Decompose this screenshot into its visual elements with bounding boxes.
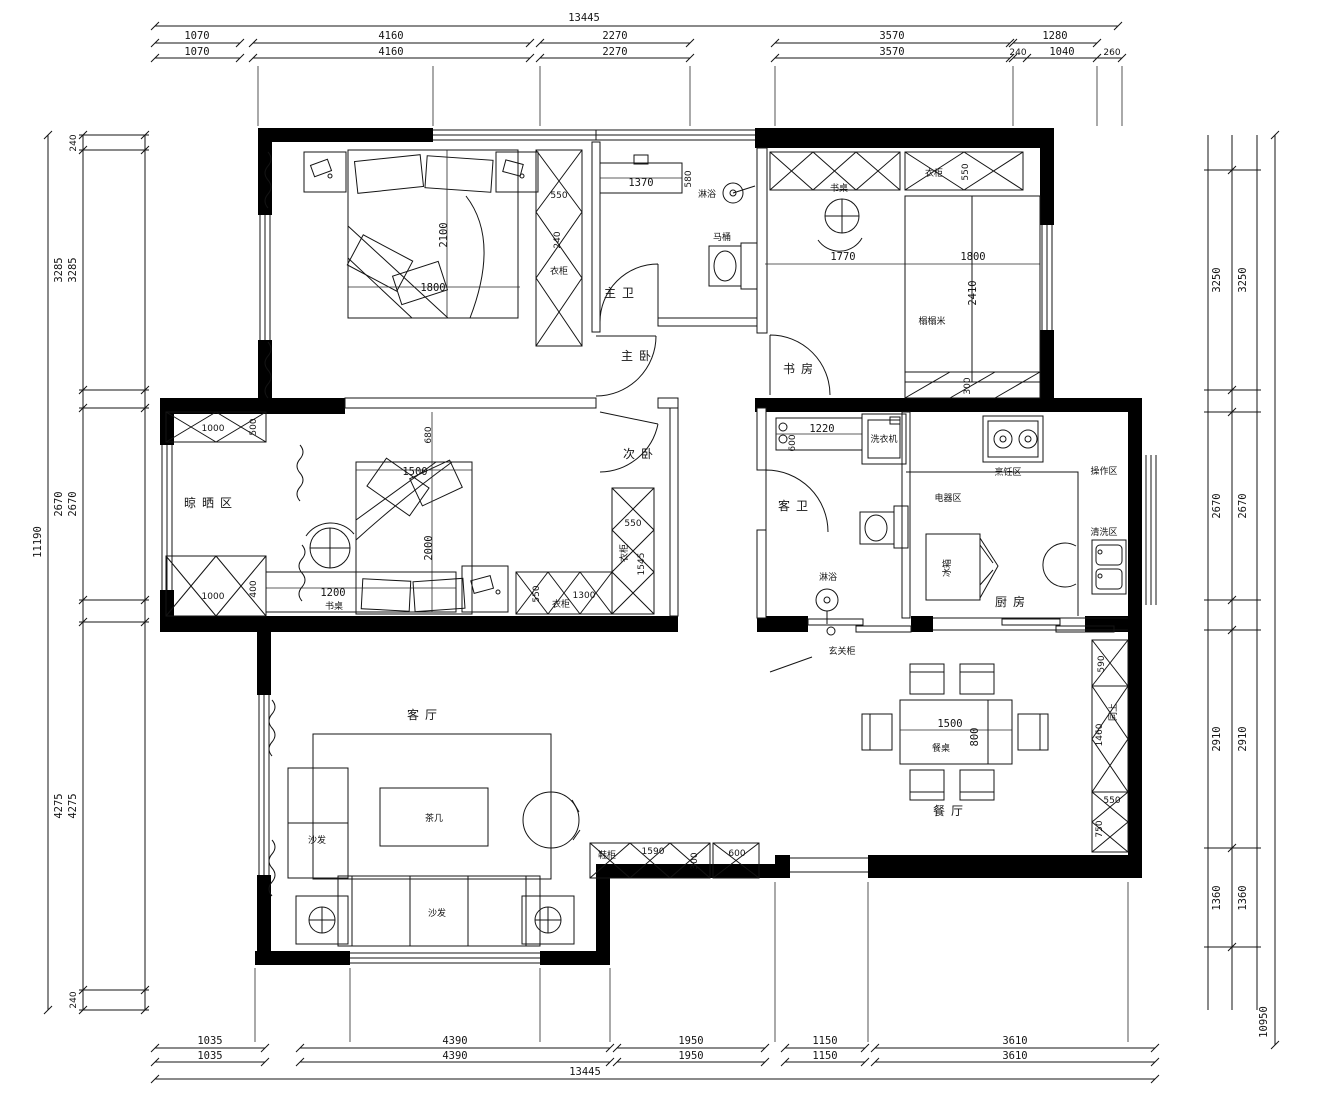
dim-top: 1070 <box>184 46 209 58</box>
dim-top: 2270 <box>602 30 627 42</box>
dim-bottom: 1035 <box>197 1035 222 1047</box>
room-label-second-bedroom: 次卧 <box>623 447 659 461</box>
dim-top: 1070 <box>184 30 209 42</box>
dim-top: 4160 <box>378 46 403 58</box>
coffee-table-label: 茶几 <box>425 812 443 824</box>
shower-label: 淋浴 <box>698 188 716 200</box>
second-bedroom: 680 1500 2000 1200 书桌 550 衣柜 1545 550 衣柜… <box>266 412 659 614</box>
zone-appliance: 电器区 <box>934 492 961 504</box>
floor-plan-drawing: 13445 1070 4160 2270 3570 1280 1070 4160… <box>0 0 1327 1115</box>
dim-bed2-len: 2000 <box>423 535 435 560</box>
wardrobe-label: 衣柜 <box>550 265 568 277</box>
dim-ent1: 590 <box>1097 655 1107 672</box>
dim-left: 3285 <box>67 257 79 282</box>
washing-machine-label: 洗衣机 <box>870 433 897 445</box>
room-label-guest-bath: 客卫 <box>778 498 814 513</box>
dim-table-w: 800 <box>969 728 981 747</box>
shower-label: 淋浴 <box>819 571 837 583</box>
living-room: 沙发 沙发 茶几 客厅 鞋柜 1590 300 600 <box>288 707 759 946</box>
dim-bottom: 1950 <box>678 1035 703 1047</box>
dim-bath2-cab: 1220 <box>809 423 834 435</box>
dim-bottom: 1035 <box>197 1050 222 1062</box>
dim-wr4-w: 1300 <box>573 591 596 601</box>
dim-bed2-w: 1500 <box>402 466 427 478</box>
dim-vanity: 1370 <box>628 177 653 189</box>
dim-top: 2270 <box>602 46 627 58</box>
wardrobe-label: 衣柜 <box>552 598 570 610</box>
dim-wr3-len: 1545 <box>637 553 647 576</box>
room-label-study: 书房 <box>783 361 819 376</box>
dim-chain-left: 11190 3285 2670 4275 240 3285 2670 4275 … <box>32 131 149 1014</box>
floor-plan-canvas: 13445 1070 4160 2270 3570 1280 1070 4160… <box>0 0 1327 1115</box>
dim-shoe1: 1590 <box>642 847 665 857</box>
wardrobe-label: 衣柜 <box>618 544 630 562</box>
dim-right: 2910 <box>1237 726 1249 751</box>
room-label-kitchen: 厨房 <box>995 594 1031 609</box>
dim-ent3: 550 <box>1103 796 1120 806</box>
dim-bottom: 1150 <box>812 1050 837 1062</box>
room-label-drying-area: 晾晒区 <box>184 495 238 510</box>
dim-left: 3285 <box>53 257 65 282</box>
dim-top: 4160 <box>378 30 403 42</box>
dim-wr4-d: 550 <box>532 585 542 602</box>
sofa-label: 沙发 <box>428 907 446 919</box>
dim-chain-top: 13445 1070 4160 2270 3570 1280 1070 4160… <box>151 12 1126 126</box>
dim-right: 1360 <box>1237 885 1249 910</box>
sofa-label: 沙发 <box>308 834 326 846</box>
dim-bottom-overall: 13445 <box>569 1066 601 1078</box>
dim-top-overall: 13445 <box>568 12 600 24</box>
room-label-master-bath: 主卫 <box>604 286 640 300</box>
dim-top: 3570 <box>879 30 904 42</box>
zone-washing: 清洗区 <box>1090 526 1117 538</box>
dim-left: 4275 <box>53 793 65 818</box>
dim-tatami-l: 2410 <box>967 280 979 305</box>
dim-left: 240 <box>69 991 79 1008</box>
master-bath: 1370 580 淋浴 马桶 主卫 <box>600 155 757 300</box>
desk-label: 书桌 <box>830 182 848 194</box>
dim-chain-bottom: 1035 4390 1950 1150 3610 1035 4390 1950 … <box>151 882 1159 1083</box>
dim-bottom: 4390 <box>442 1035 467 1047</box>
dim-cab-bot-d: 400 <box>249 580 259 597</box>
dim-right: 2910 <box>1211 726 1223 751</box>
dim-bottom: 1950 <box>678 1050 703 1062</box>
dim-shoe2: 600 <box>728 849 745 859</box>
dim-left: 4275 <box>67 793 79 818</box>
dim-shoe1-d: 300 <box>690 852 700 869</box>
dim-left: 2670 <box>53 491 65 516</box>
dim-cab-top-d: 500 <box>249 418 259 435</box>
dim-wardrobe-depth: 240 <box>553 231 563 248</box>
dim-bottom: 4390 <box>442 1050 467 1062</box>
dining-room: 1500 800 餐桌 餐厅 玄关柜 590 1460 同上 550 750 <box>770 640 1128 852</box>
desk-label: 书桌 <box>325 600 343 612</box>
dim-shelf: 300 <box>963 377 973 394</box>
dim-left: 240 <box>69 134 79 151</box>
guest-bath: 1220 600 洗衣机 淋浴 客卫 <box>776 414 908 635</box>
room-label-dining: 餐厅 <box>933 803 969 818</box>
dim-bed-width: 1800 <box>420 282 445 294</box>
dim-bottom: 1150 <box>812 1035 837 1047</box>
dim-ent2: 1460 <box>1095 723 1105 746</box>
dim-bath2-cab-d: 600 <box>788 434 798 451</box>
dim-right: 3250 <box>1237 267 1249 292</box>
dim-right-overall: 10950 <box>1258 1006 1270 1038</box>
tatami-label: 榻榻米 <box>918 315 945 327</box>
dim-chain-right: 3250 2670 2910 1360 3250 2670 2910 1360 … <box>1204 131 1279 1049</box>
dim-cab-top: 1000 <box>202 424 225 434</box>
room-label-living: 客厅 <box>407 707 443 722</box>
wardrobe-label: 衣柜 <box>925 167 943 179</box>
dim-wardrobe-width: 550 <box>550 191 567 201</box>
dim-wr3-w: 550 <box>624 519 641 529</box>
zone-cooking: 烹饪区 <box>994 466 1021 478</box>
dim-top: 240 <box>1009 48 1026 58</box>
dim-right: 3250 <box>1211 267 1223 292</box>
wall-hatches <box>265 152 305 896</box>
dim-gap: 680 <box>424 426 434 443</box>
kitchen: 烹饪区 电器区 操作区 清洗区 冰箱 厨房 <box>906 416 1126 616</box>
zone-prep: 操作区 <box>1090 465 1117 477</box>
room-label-master-bedroom: 主卧 <box>621 349 657 363</box>
dim-table-l: 1500 <box>937 718 962 730</box>
dim-tatami-w: 1800 <box>960 251 985 263</box>
dim-bed-length: 2100 <box>438 222 450 247</box>
entry-cabinet-label: 玄关柜 <box>828 645 855 657</box>
toilet-label: 马桶 <box>713 231 731 243</box>
dim-top: 1040 <box>1049 46 1074 58</box>
dim-right: 1360 <box>1211 885 1223 910</box>
drying-area: 1000 500 1000 400 晾晒区 <box>166 412 266 616</box>
dim-ent4: 750 <box>1095 820 1105 837</box>
dim-desk2: 1200 <box>320 587 345 599</box>
dim-top: 1280 <box>1042 30 1067 42</box>
dim-bottom: 3610 <box>1002 1050 1027 1062</box>
fridge-label: 冰箱 <box>941 559 953 577</box>
dim-study: 1770 <box>830 251 855 263</box>
dining-table-label: 餐桌 <box>932 742 950 754</box>
dim-right: 2670 <box>1211 493 1223 518</box>
dim-top: 3570 <box>879 46 904 58</box>
dim-cab-bot: 1000 <box>202 592 225 602</box>
same-as-above-label: 同上 <box>1108 703 1119 721</box>
dim-study-wardrobe: 550 <box>961 163 971 180</box>
dim-bottom: 3610 <box>1002 1035 1027 1047</box>
dim-left-overall: 11190 <box>32 526 44 558</box>
dim-right: 2670 <box>1237 493 1249 518</box>
dim-vanity-depth: 580 <box>684 170 694 187</box>
study: 550 衣柜 书桌 1770 1800 2410 榻榻米 300 书房 <box>765 152 1040 398</box>
shoe-cabinet-label: 鞋柜 <box>598 849 616 861</box>
master-bedroom: 2100 1800 550 240 衣柜 主卧 <box>304 150 657 363</box>
dim-left: 2670 <box>67 491 79 516</box>
dim-top: 260 <box>1103 48 1120 58</box>
